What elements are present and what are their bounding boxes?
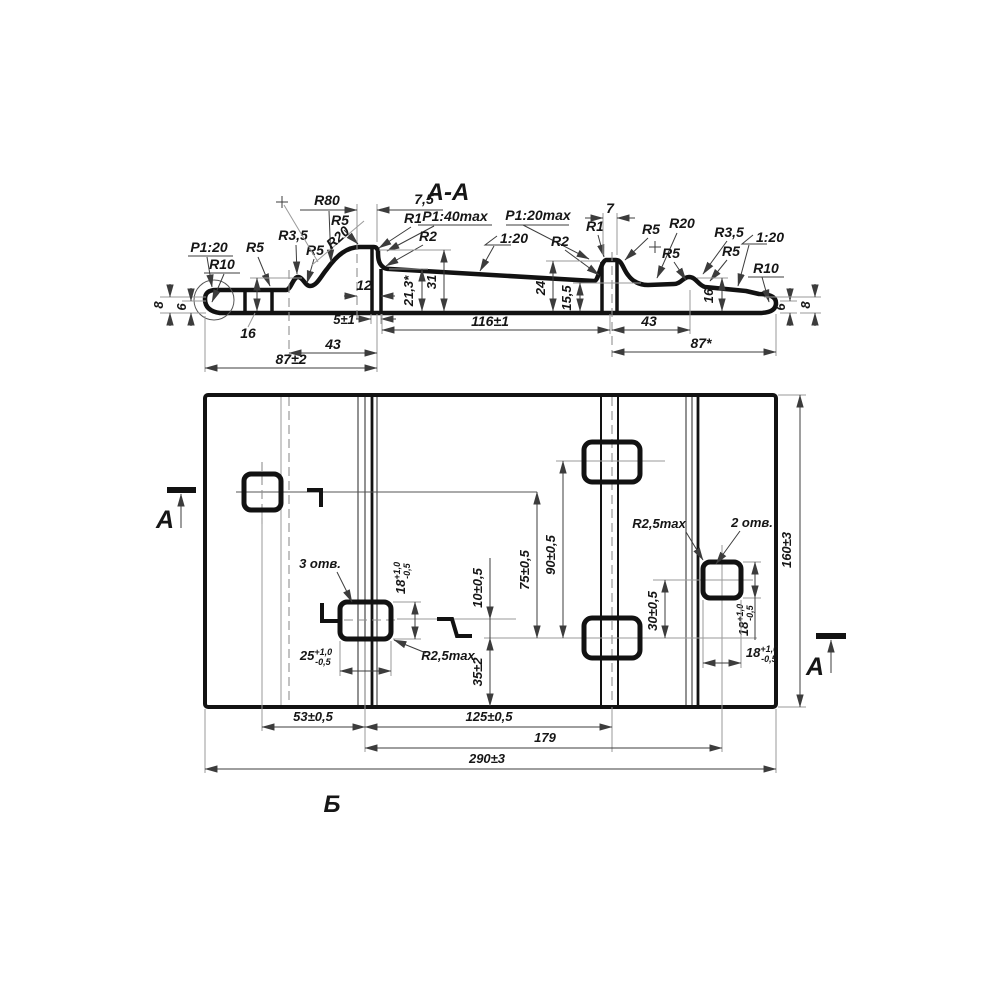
- r35-left-label: R3,5: [278, 227, 308, 243]
- dim-10-label: 10±0,5: [470, 567, 485, 607]
- dim-116: 116±1: [382, 313, 610, 334]
- dim-15-5: 15,5: [559, 283, 641, 311]
- dim-30-label: 30±0,5: [645, 590, 660, 630]
- dim-43-left-label: 43: [324, 336, 341, 352]
- dim-53: 53±0,5: [262, 709, 365, 727]
- dim-31-label: 31: [424, 275, 439, 289]
- r2-a-label: R2: [419, 228, 437, 244]
- section-marker-bottom-label: А: [805, 653, 824, 681]
- dim-160-label: 160±3: [779, 531, 794, 568]
- view-b-label: Б: [324, 791, 341, 818]
- dim-160: 160±3: [778, 395, 806, 707]
- dim-6-left: 6: [174, 288, 206, 326]
- r10-left-label: R10: [209, 256, 235, 272]
- dim-8-left-label: 8: [151, 301, 166, 309]
- dim-53-label: 53±0,5: [293, 709, 333, 724]
- r25max-bottom-label: R2,5max: [421, 648, 475, 663]
- dim-21-3-label: 21,3*: [401, 275, 416, 307]
- dim-290: 290±3: [205, 751, 776, 769]
- dim-90-label: 90±0,5: [543, 534, 558, 574]
- dim-24-label: 24: [533, 280, 548, 296]
- r5-b-label: R5: [306, 242, 324, 258]
- dim-16-left-label: 16: [240, 325, 256, 341]
- detail-circle: [194, 280, 234, 320]
- r10-right-label: R10: [753, 260, 779, 276]
- r5-d-label: R5: [642, 221, 660, 237]
- r5-a-label: R5: [246, 239, 264, 255]
- dim-7-label: 7: [606, 200, 615, 216]
- dim-6-right-label: 6: [773, 303, 788, 311]
- dim-179-label: 179: [534, 730, 556, 745]
- dim-15-5-label: 15,5: [559, 285, 574, 311]
- dim-8-right-label: 8: [798, 301, 813, 309]
- section-marker-bottom: А: [805, 636, 846, 681]
- r25max-top-label: R2,5max: [632, 516, 686, 531]
- r35-right-label: R3,5: [714, 224, 744, 240]
- engineering-drawing: A-A P1:20 R10 R5 R3,: [0, 0, 1000, 1000]
- dim-7-5-label: 7,5: [414, 191, 434, 207]
- section-marker-top-label: А: [155, 506, 174, 534]
- r1-b-label: R1: [586, 218, 604, 234]
- section-aa: A-A P1:20 R10 R5 R3,: [151, 179, 821, 372]
- dim-6-right: 6: [773, 288, 797, 326]
- dim-12: 12: [344, 277, 395, 296]
- slope-right-label: 1:20: [756, 229, 784, 245]
- r5-f-label: R5: [722, 243, 740, 259]
- r20-right-label: R20: [669, 215, 695, 231]
- dim-5-label: 5±1: [333, 312, 355, 327]
- dim-21-3: 21,3*: [389, 269, 428, 311]
- dim-179: 179: [365, 730, 722, 748]
- r1-a-label: R1: [404, 210, 422, 226]
- dim-16-right-label: 16: [701, 288, 716, 303]
- dim-116-label: 116±1: [471, 313, 509, 329]
- dim-87-star: 87*: [612, 314, 776, 356]
- dim-12-label: 12: [356, 277, 372, 293]
- dim-35-label: 35±2: [470, 657, 485, 687]
- dim-125-label: 125±0,5: [466, 709, 514, 724]
- arc-center-cross-right: [649, 241, 661, 253]
- holes3-label: 3 отв.: [299, 556, 341, 571]
- drawing-sheet: A-A P1:20 R10 R5 R3,: [0, 0, 1000, 1000]
- r5-e-label: R5: [662, 245, 680, 261]
- slope-20max-label: P1:20max: [505, 207, 572, 223]
- dim-87-star-label: 87*: [690, 335, 712, 351]
- plan-view: А А 3 отв. 2 отв. R2,5max R2,5max 10: [155, 395, 846, 818]
- dim-43-right-label: 43: [640, 313, 657, 329]
- dim-290-label: 290±3: [468, 751, 506, 766]
- r80-label: R80: [314, 192, 340, 208]
- callouts-right: R2 R1 R5 R20 R5 R3,5 R5 1:20 R10: [551, 215, 784, 302]
- slope-left-label: P1:20: [190, 239, 228, 255]
- section-marker-top: А: [155, 490, 196, 534]
- callouts-left: P1:20 R10 R5 R3,5 R5 R80 R5 R20 R1: [188, 192, 492, 302]
- dim-125: 125±0,5: [365, 709, 612, 727]
- dim-6-left-label: 6: [174, 303, 189, 311]
- holes2-label: 2 отв.: [730, 515, 773, 530]
- dim-75-label: 75±0,5: [517, 549, 532, 589]
- r2-b-label: R2: [551, 233, 569, 249]
- dim-87-2-label: 87±2: [275, 351, 306, 367]
- slope-mid-label: 1:20: [500, 230, 528, 246]
